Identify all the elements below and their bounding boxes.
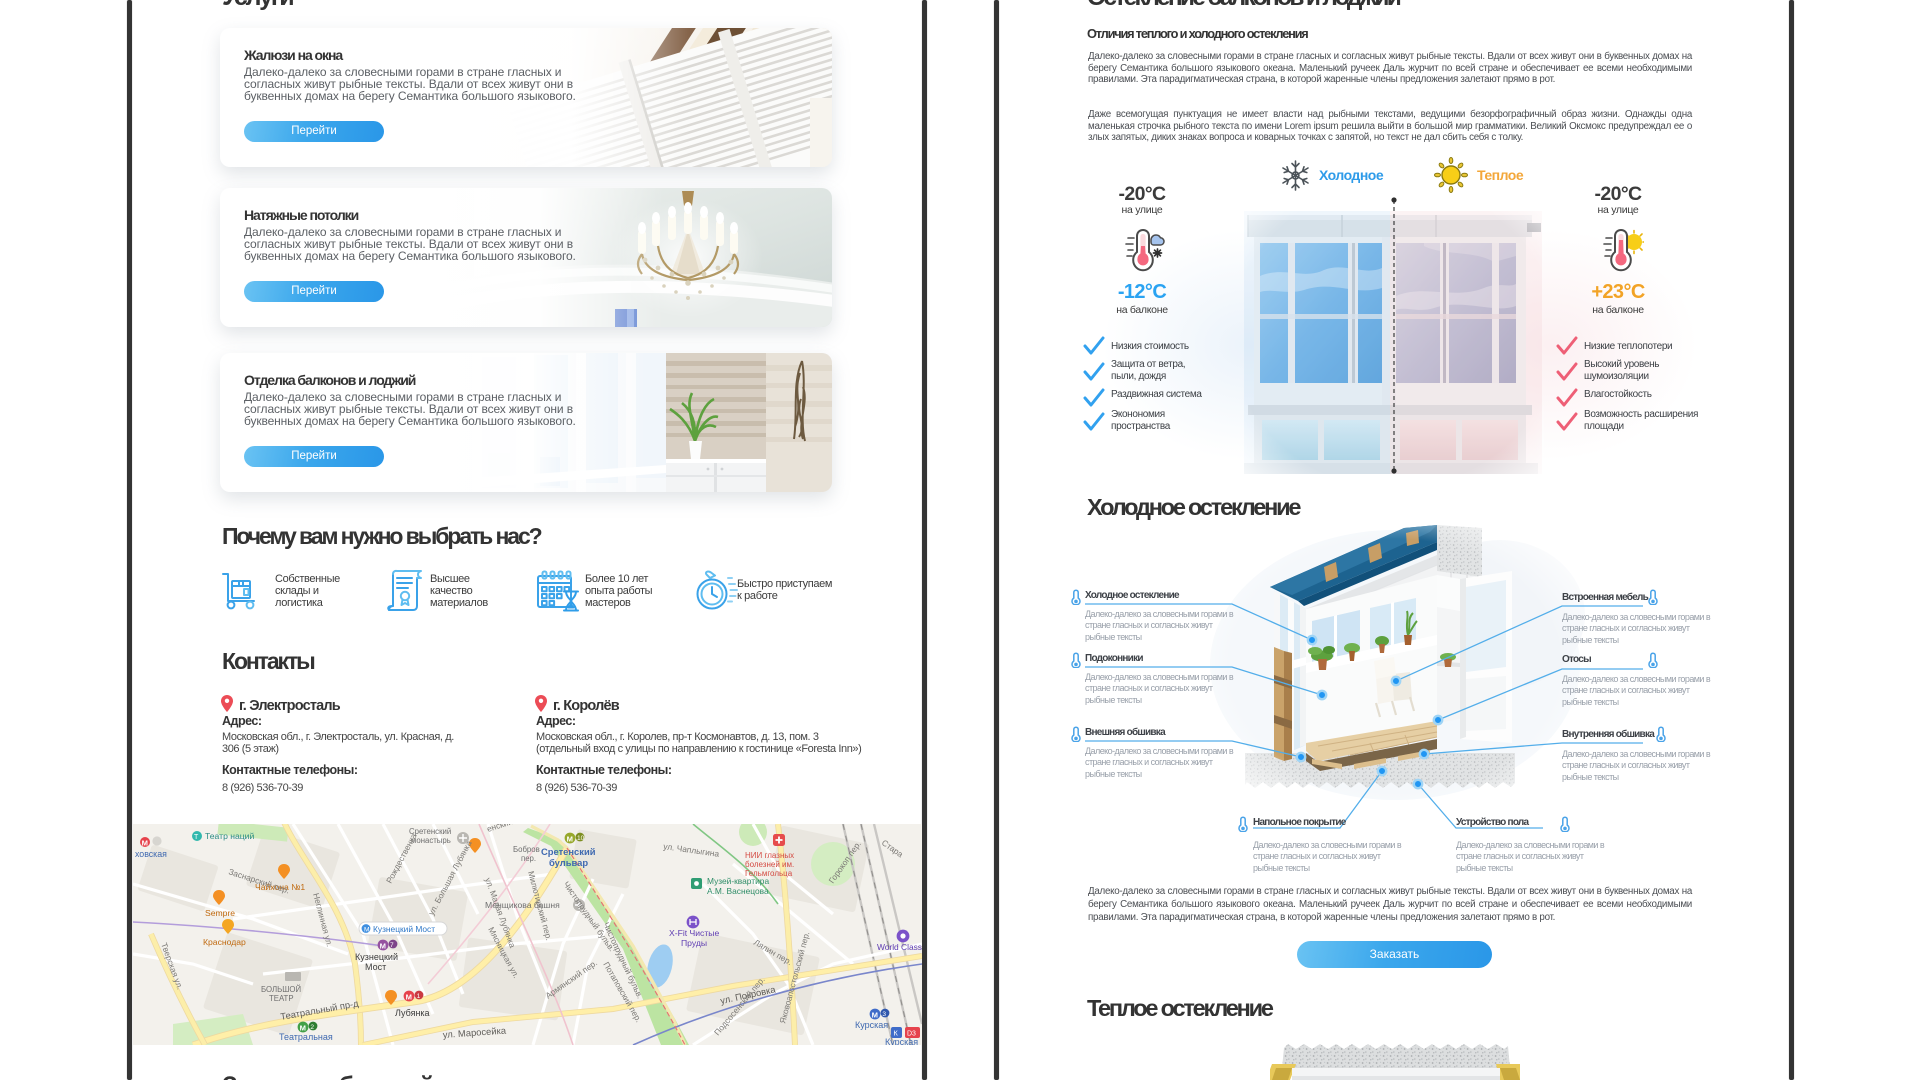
svg-text:1: 1 — [417, 993, 421, 1000]
svg-text:М: М — [872, 1011, 878, 1020]
svg-text:А.М. Васнецова: А.М. Васнецова — [707, 886, 769, 896]
svg-text:Кузнецкий: Кузнецкий — [355, 952, 398, 962]
svg-text:БОЛЬШОЙ: БОЛЬШОЙ — [261, 985, 301, 994]
svg-text:7: 7 — [390, 942, 394, 949]
svg-text:Театральная: Театральная — [279, 1032, 333, 1042]
svg-text:Краснодар: Краснодар — [203, 937, 246, 947]
svg-text:Мост: Мост — [365, 962, 386, 972]
svg-text:2: 2 — [310, 1024, 314, 1031]
svg-text:X-Fit Чистые: X-Fit Чистые — [669, 928, 719, 938]
svg-text:М: М — [380, 942, 386, 951]
svg-text:М: М — [142, 838, 148, 847]
svg-text:3: 3 — [882, 1011, 886, 1018]
svg-text:Сретенский: Сретенский — [541, 846, 596, 857]
svg-text:World Class: World Class — [877, 942, 922, 952]
svg-text:болезней им.: болезней им. — [745, 860, 794, 869]
svg-text:Бобров: Бобров — [513, 845, 540, 854]
svg-text:ховская: ховская — [135, 849, 167, 859]
svg-text:М: М — [406, 993, 412, 1002]
svg-text:Курская: Курская — [885, 1037, 918, 1045]
svg-text:Пруды: Пруды — [681, 938, 707, 948]
svg-text:Театр наций: Театр наций — [205, 831, 254, 841]
svg-text:Курская: Курская — [855, 1020, 888, 1030]
svg-text:Кузнецкий Мост: Кузнецкий Мост — [373, 924, 435, 934]
svg-text:Лубянка: Лубянка — [395, 1008, 430, 1018]
svg-text:Sempre: Sempre — [205, 908, 235, 918]
svg-text:М: М — [567, 835, 573, 844]
svg-text:Т: Т — [194, 834, 199, 841]
svg-text:М: М — [364, 927, 370, 934]
svg-text:пер.: пер. — [521, 854, 536, 863]
svg-text:10: 10 — [577, 835, 585, 842]
svg-text:Гельмгольца: Гельмгольца — [745, 869, 793, 878]
svg-text:бульвар: бульвар — [549, 857, 588, 868]
svg-text:НИИ глазных: НИИ глазных — [745, 851, 794, 860]
svg-text:ТЕАТР: ТЕАТР — [269, 994, 294, 1003]
